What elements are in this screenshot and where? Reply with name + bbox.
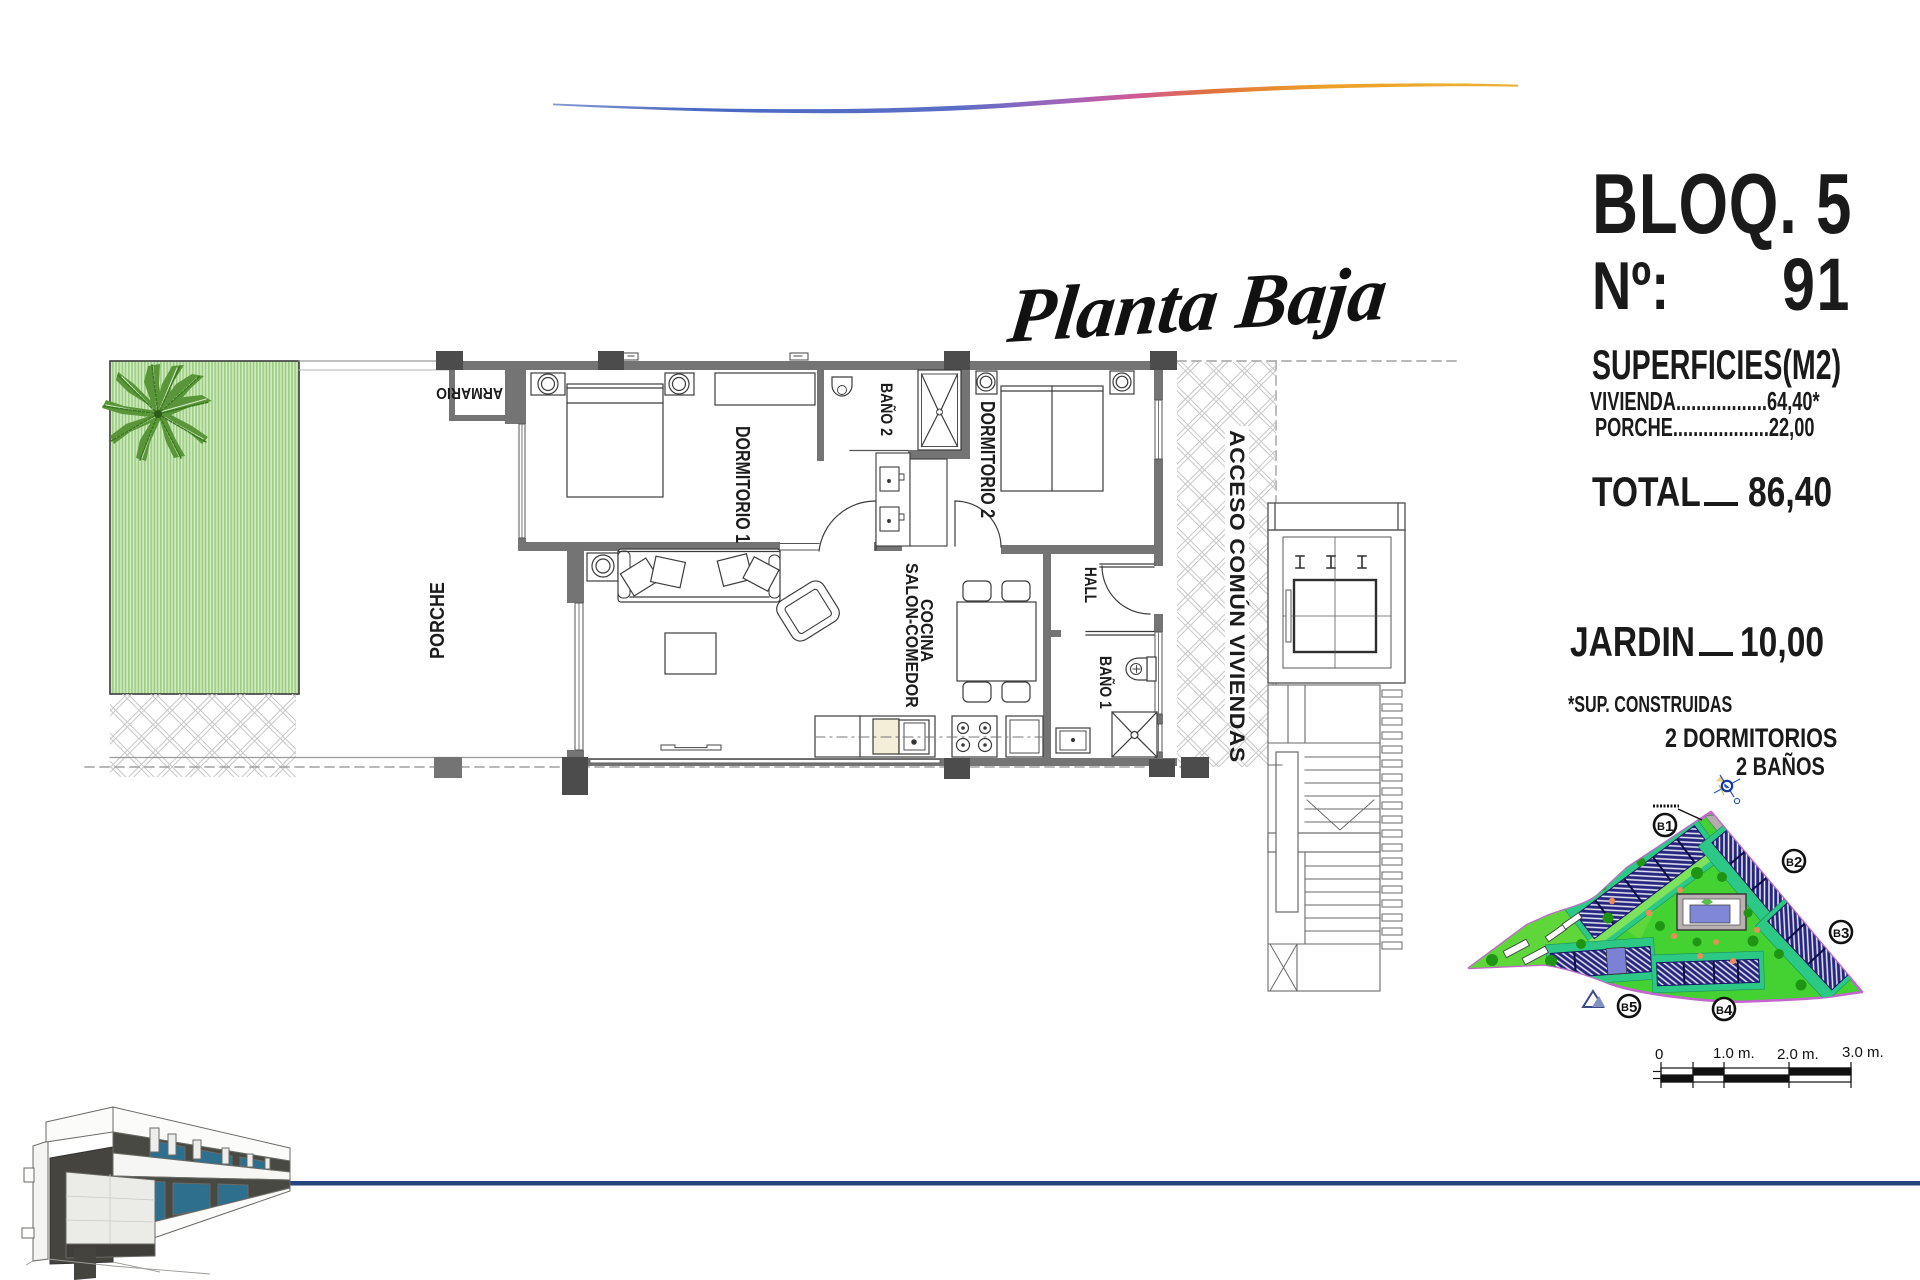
svg-text:B: B bbox=[1833, 928, 1841, 940]
svg-text:10,00: 10,00 bbox=[1740, 620, 1824, 666]
svg-text:SUPERFICIES(M2): SUPERFICIES(M2) bbox=[1592, 340, 1841, 388]
svg-text:B: B bbox=[1716, 1005, 1724, 1017]
svg-text:3.0 m.: 3.0 m. bbox=[1842, 1044, 1884, 1061]
svg-text:PORCHE...................22,00: PORCHE...................22,00 bbox=[1595, 413, 1814, 442]
svg-text:DORMITORIO 2: DORMITORIO 2 bbox=[977, 401, 999, 518]
svg-text:5: 5 bbox=[1629, 999, 1637, 1016]
svg-text:VIVIENDA..................64,4: VIVIENDA..................64,40* bbox=[1590, 387, 1820, 416]
svg-text:91: 91 bbox=[1782, 244, 1851, 327]
svg-text:B: B bbox=[1786, 857, 1794, 869]
svg-text:COCINA: COCINA bbox=[917, 599, 937, 662]
svg-text:2 BAÑOS: 2 BAÑOS bbox=[1736, 753, 1825, 781]
svg-text:1.0 m.: 1.0 m. bbox=[1713, 1045, 1755, 1062]
svg-text:*SUP. CONSTRUIDAS: *SUP. CONSTRUIDAS bbox=[1568, 692, 1732, 717]
svg-text:2 DORMITORIOS: 2 DORMITORIOS bbox=[1665, 724, 1837, 754]
svg-text:1: 1 bbox=[1665, 818, 1673, 835]
svg-text:Nº:: Nº: bbox=[1592, 248, 1669, 324]
svg-text:Planta Baja: Planta Baja bbox=[1003, 250, 1392, 359]
svg-text:2.0 m.: 2.0 m. bbox=[1777, 1046, 1819, 1063]
svg-text:PORCHE: PORCHE bbox=[426, 582, 449, 659]
svg-text:TOTAL: TOTAL bbox=[1592, 470, 1701, 516]
svg-text:B: B bbox=[1657, 821, 1665, 833]
svg-text:3: 3 bbox=[1841, 925, 1849, 942]
svg-text:B: B bbox=[1621, 1002, 1629, 1014]
svg-text:BLOQ. 5: BLOQ. 5 bbox=[1592, 156, 1852, 251]
svg-text:ARMARIO: ARMARIO bbox=[436, 384, 503, 402]
svg-text:0: 0 bbox=[1655, 1046, 1663, 1063]
svg-text:ACCESO COMÚN VIVIENDAS: ACCESO COMÚN VIVIENDAS bbox=[1225, 430, 1249, 763]
svg-text:2: 2 bbox=[1794, 854, 1802, 871]
svg-text:DORMITORIO 1: DORMITORIO 1 bbox=[732, 426, 754, 543]
svg-text:4: 4 bbox=[1724, 1002, 1733, 1019]
svg-text:JARDIN: JARDIN bbox=[1570, 620, 1695, 666]
svg-text:BAÑO 1: BAÑO 1 bbox=[1096, 656, 1116, 709]
svg-text:86,40: 86,40 bbox=[1748, 470, 1832, 516]
svg-text:HALL: HALL bbox=[1081, 567, 1098, 603]
svg-text:BAÑO 2: BAÑO 2 bbox=[877, 383, 897, 436]
